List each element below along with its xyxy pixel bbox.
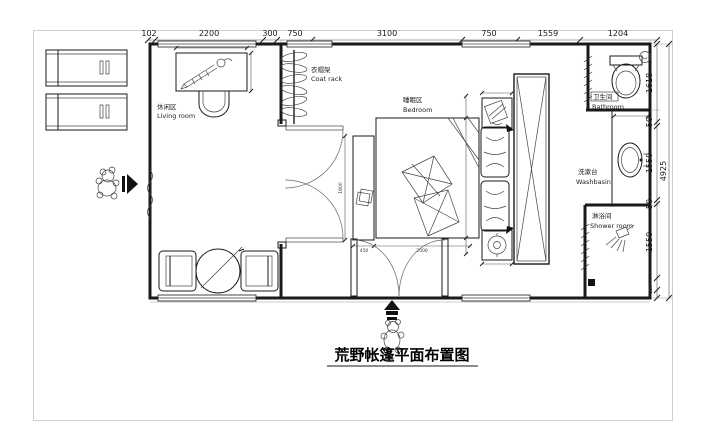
quilt-pillow-2 bbox=[414, 190, 459, 236]
bedroom-label-en: Bedroom bbox=[403, 106, 432, 114]
head-pillow-bottom bbox=[481, 181, 509, 231]
floor-plan-drawing: 102 2200 300 750 3100 750 1559 1204 bbox=[0, 0, 701, 434]
bathroom-label-zh: 卫生间 bbox=[593, 92, 613, 101]
quilt-pillow-1 bbox=[402, 156, 452, 203]
bed bbox=[376, 118, 509, 238]
head-pillow-top bbox=[481, 127, 509, 177]
washbasin-label-zh: 洗漱台 bbox=[578, 167, 598, 176]
living-room-label-en: Living room bbox=[157, 112, 195, 120]
dim-right-1618: 1618 bbox=[645, 73, 654, 93]
drain-icon bbox=[588, 279, 595, 286]
plant-icon bbox=[484, 100, 507, 124]
bear-icon-left bbox=[96, 167, 119, 199]
armchair-left bbox=[159, 251, 196, 291]
washbasin-label-en: Washbasin bbox=[576, 178, 611, 186]
shower-label-zh: 淋浴间 bbox=[592, 211, 612, 220]
dim-right-1550a: 1550 bbox=[645, 153, 654, 173]
dim-right-total-4925: 4925 bbox=[659, 161, 668, 181]
dim-top-3100: 3100 bbox=[377, 29, 397, 38]
desk bbox=[174, 46, 253, 93]
pen-icon bbox=[181, 59, 232, 89]
dim-top-102: 102 bbox=[141, 29, 156, 38]
round-table bbox=[196, 247, 244, 293]
dim-bed-length: 1800 bbox=[338, 182, 344, 194]
dim-top-1204: 1204 bbox=[608, 29, 628, 38]
living-room-label-zh: 休闲区 bbox=[157, 102, 177, 111]
coat-rack-label-en: Coat rack bbox=[311, 75, 342, 83]
entrance-double-door bbox=[340, 239, 458, 298]
dim-right-250: 250 bbox=[648, 285, 654, 294]
drawing-title: 荒野帐篷平面布置图 bbox=[334, 346, 469, 364]
coat-rack-icon bbox=[281, 50, 308, 124]
bathroom-label-en: Bathroom bbox=[592, 103, 624, 111]
coat-rack-label-zh: 衣帽架 bbox=[311, 65, 331, 74]
dim-top-750b: 750 bbox=[481, 29, 496, 38]
floor-plan-canvas: 102 2200 300 750 3100 750 1559 1204 bbox=[0, 0, 701, 434]
dim-top-300: 300 bbox=[262, 29, 277, 38]
dim-right-50a: 50 bbox=[645, 117, 654, 127]
nightstand-bottom bbox=[480, 226, 514, 266]
window-segments bbox=[158, 41, 530, 301]
dim-right-1550b: 1550 bbox=[645, 232, 654, 252]
dim-right-50b: 50 bbox=[645, 199, 654, 209]
exterior-walls bbox=[148, 41, 651, 302]
dim-bench-width: 450 bbox=[360, 248, 369, 254]
dim-top-2200: 2200 bbox=[199, 29, 219, 38]
lounge-chair-2 bbox=[46, 94, 127, 130]
wardrobe bbox=[514, 74, 549, 264]
interior-double-door bbox=[278, 120, 343, 248]
entrance-arrow-up-icon bbox=[384, 300, 400, 320]
desk-chair bbox=[199, 91, 229, 117]
dim-bed-width: 2000 bbox=[416, 248, 428, 254]
dim-top-1559: 1559 bbox=[538, 29, 558, 38]
washbasin-icon bbox=[618, 143, 648, 177]
armchair-right bbox=[241, 251, 278, 291]
dim-top-750a: 750 bbox=[287, 29, 302, 38]
bedroom-label-zh: 睡眠区 bbox=[403, 96, 423, 104]
bed-bench bbox=[353, 136, 374, 240]
lounge-chair-1 bbox=[46, 50, 127, 86]
entrance-arrow-right-icon bbox=[122, 174, 138, 194]
lamp-icon bbox=[488, 233, 506, 257]
nightstand-top bbox=[480, 91, 514, 132]
